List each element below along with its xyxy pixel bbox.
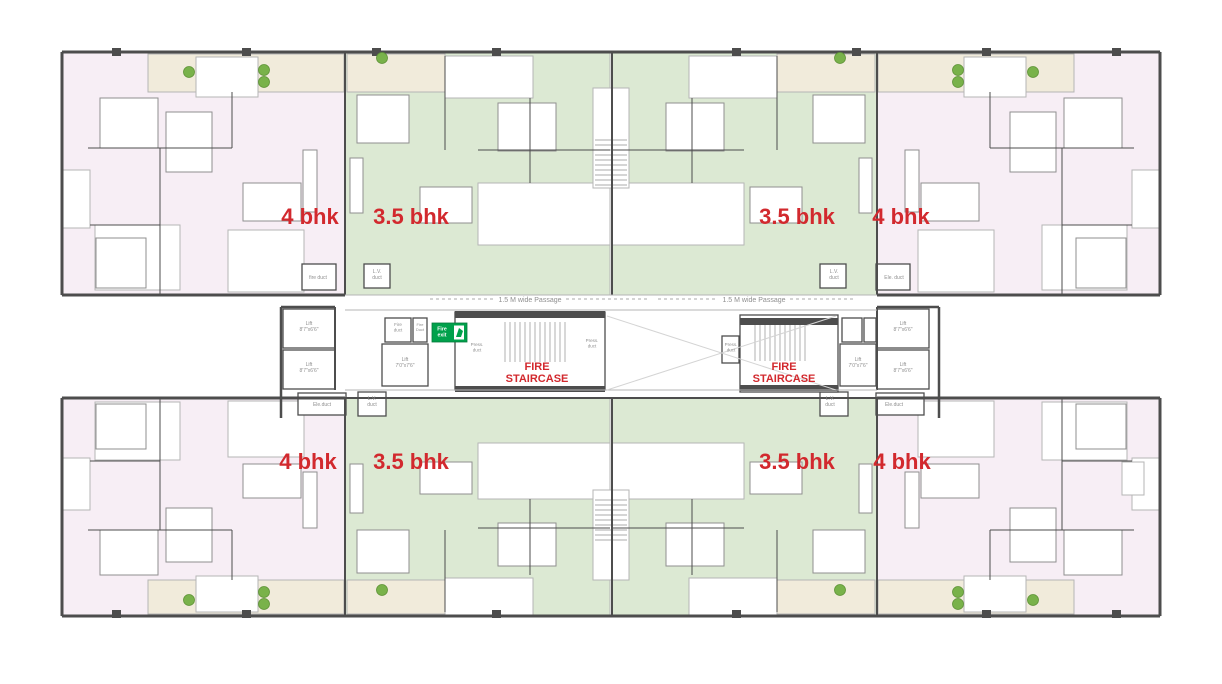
wall-pier (492, 48, 501, 56)
room-service (964, 576, 1026, 612)
room-service (612, 443, 744, 499)
wall-pier (112, 48, 121, 56)
lift-label-right-1: 8'7"x6'6" (893, 327, 912, 333)
plant-icon (259, 599, 270, 610)
furniture (357, 95, 409, 143)
furniture (166, 508, 212, 562)
furniture (1010, 112, 1056, 172)
wall-pier (242, 48, 251, 56)
furniture (303, 472, 317, 528)
plant-icon (184, 67, 195, 78)
plant-icon (835, 53, 846, 64)
furniture (1076, 404, 1126, 449)
unit-label-top-right-35bhk: 3.5 bhk (759, 204, 836, 229)
room-service (689, 56, 777, 98)
unit-label-bottom-left-4bhk: 4 bhk (279, 449, 337, 474)
furniture (498, 523, 556, 566)
staircase-wall (455, 386, 605, 392)
plant-icon (377, 585, 388, 596)
lift-label-right-2: 8'7"x6'6" (893, 368, 912, 374)
room-service (445, 56, 533, 98)
furniture (100, 530, 158, 575)
duct-label-top-left-lv: duct (372, 275, 382, 281)
plant-icon (1028, 595, 1039, 606)
room-service (918, 230, 994, 292)
furniture (905, 472, 919, 528)
unit-label-bottom-right-4bhk: 4 bhk (873, 449, 931, 474)
room-cream (347, 580, 445, 614)
furniture (859, 464, 872, 513)
room-service (196, 576, 258, 612)
duct-label-bottom-left-lv: duct (367, 402, 377, 408)
room-cream (777, 54, 875, 92)
press-duct-label-right-1: Press. (725, 342, 738, 347)
plant-icon (953, 77, 964, 88)
room-service (478, 443, 610, 499)
room-service (1132, 170, 1159, 228)
wall-pier (492, 610, 501, 618)
plant-icon (953, 587, 964, 598)
wall-pier (982, 610, 991, 618)
wall-pier (852, 48, 861, 56)
unit-label-bottom-left-35bhk: 3.5 bhk (373, 449, 450, 474)
plant-icon (259, 587, 270, 598)
plant-icon (377, 53, 388, 64)
furniture (1010, 508, 1056, 562)
furniture (96, 238, 146, 288)
furniture (303, 150, 317, 212)
wall-pier (732, 610, 741, 618)
duct-label-top-right-lv: duct (829, 275, 839, 281)
furniture (357, 530, 409, 573)
furniture (96, 404, 146, 449)
wall-pier (982, 48, 991, 56)
press-duct-label-left-1: Press. (471, 342, 484, 347)
press-duct-label-left-2: duct (588, 344, 597, 349)
room-service (63, 170, 90, 228)
room-cream (777, 580, 875, 614)
furniture (1076, 238, 1126, 288)
plant-icon (259, 65, 270, 76)
room-service (478, 183, 610, 245)
press-duct-label-left-2: Press. (586, 338, 599, 343)
staircase-wall (740, 318, 838, 325)
room-service (612, 183, 744, 245)
passage-label-right: 1.5 M wide Passage (722, 297, 785, 304)
duct-label-top-right-ele: Ele. duct (884, 275, 904, 281)
plant-icon (953, 599, 964, 610)
wall-pier (1112, 610, 1121, 618)
fire-duct-label-left-2: Duct (416, 327, 425, 332)
duct-label-bottom-left-ele: Ele.duct (313, 402, 332, 408)
wall-pier (112, 610, 121, 618)
core-box (864, 318, 876, 342)
press-duct-label-right-1: duct (727, 348, 736, 353)
wall-pier (732, 48, 741, 56)
furniture (859, 158, 872, 213)
fire-duct-label-left-1: duct (394, 328, 403, 333)
unit-label-top-left-35bhk: 3.5 bhk (373, 204, 450, 229)
furniture (100, 98, 158, 148)
unit-label-top-right-4bhk: 4 bhk (872, 204, 930, 229)
plant-icon (259, 77, 270, 88)
furniture (1064, 98, 1122, 148)
plant-icon (835, 585, 846, 596)
furniture (350, 464, 363, 513)
unit-label-bottom-right-35bhk: 3.5 bhk (759, 449, 836, 474)
wall-pier (242, 610, 251, 618)
floor-plan-drawing: 4 bhk3.5 bhk3.5 bhk4 bhk4 bhk3.5 bhk3.5 … (0, 0, 1222, 684)
room-service (228, 230, 304, 292)
fire-staircase-label-right: FIRE (771, 361, 796, 373)
fire-staircase-label-left: STAIRCASE (506, 373, 569, 385)
plant-icon (1028, 67, 1039, 78)
room-service (445, 578, 533, 616)
room-service (63, 458, 90, 510)
furniture (498, 103, 556, 151)
furniture (905, 150, 919, 212)
fire-exit-sign-text: exit (438, 333, 447, 339)
core-box (842, 318, 862, 342)
room-service (196, 57, 258, 97)
fire-staircase-label-right: STAIRCASE (753, 373, 816, 385)
duct-label-bottom-right-lv: duct (825, 402, 835, 408)
fire-staircase-label-left: FIRE (524, 361, 549, 373)
duct-label-top-left-fire: fire duct (309, 275, 327, 281)
room-service (1122, 462, 1144, 495)
fire-duct-label-left-1: Fire (394, 322, 402, 327)
furniture (1064, 530, 1122, 575)
furniture (666, 523, 724, 566)
furniture (666, 103, 724, 151)
passage-label-left: 1.5 M wide Passage (498, 297, 561, 304)
furniture (350, 158, 363, 213)
wall-pier (1112, 48, 1121, 56)
plant-icon (953, 65, 964, 76)
fire-lift-label-left: 7'0"x7'6" (395, 363, 414, 369)
room-cream (347, 54, 445, 92)
lift-label-left-1: 8'7"x6'6" (299, 327, 318, 333)
unit-label-top-left-4bhk: 4 bhk (281, 204, 339, 229)
furniture (166, 112, 212, 172)
furniture (813, 530, 865, 573)
room-service (964, 57, 1026, 97)
duct-label-bottom-right-ele: Ele.duct (885, 402, 904, 408)
fire-lift-label-right: 7'0"x7'6" (848, 363, 867, 369)
plant-icon (184, 595, 195, 606)
furniture (813, 95, 865, 143)
press-duct-label-left-1: duct (473, 348, 482, 353)
lift-label-left-2: 8'7"x6'6" (299, 368, 318, 374)
staircase-wall (455, 311, 605, 318)
floor-plan-canvas: 4 bhk3.5 bhk3.5 bhk4 bhk4 bhk3.5 bhk3.5 … (0, 0, 1222, 684)
